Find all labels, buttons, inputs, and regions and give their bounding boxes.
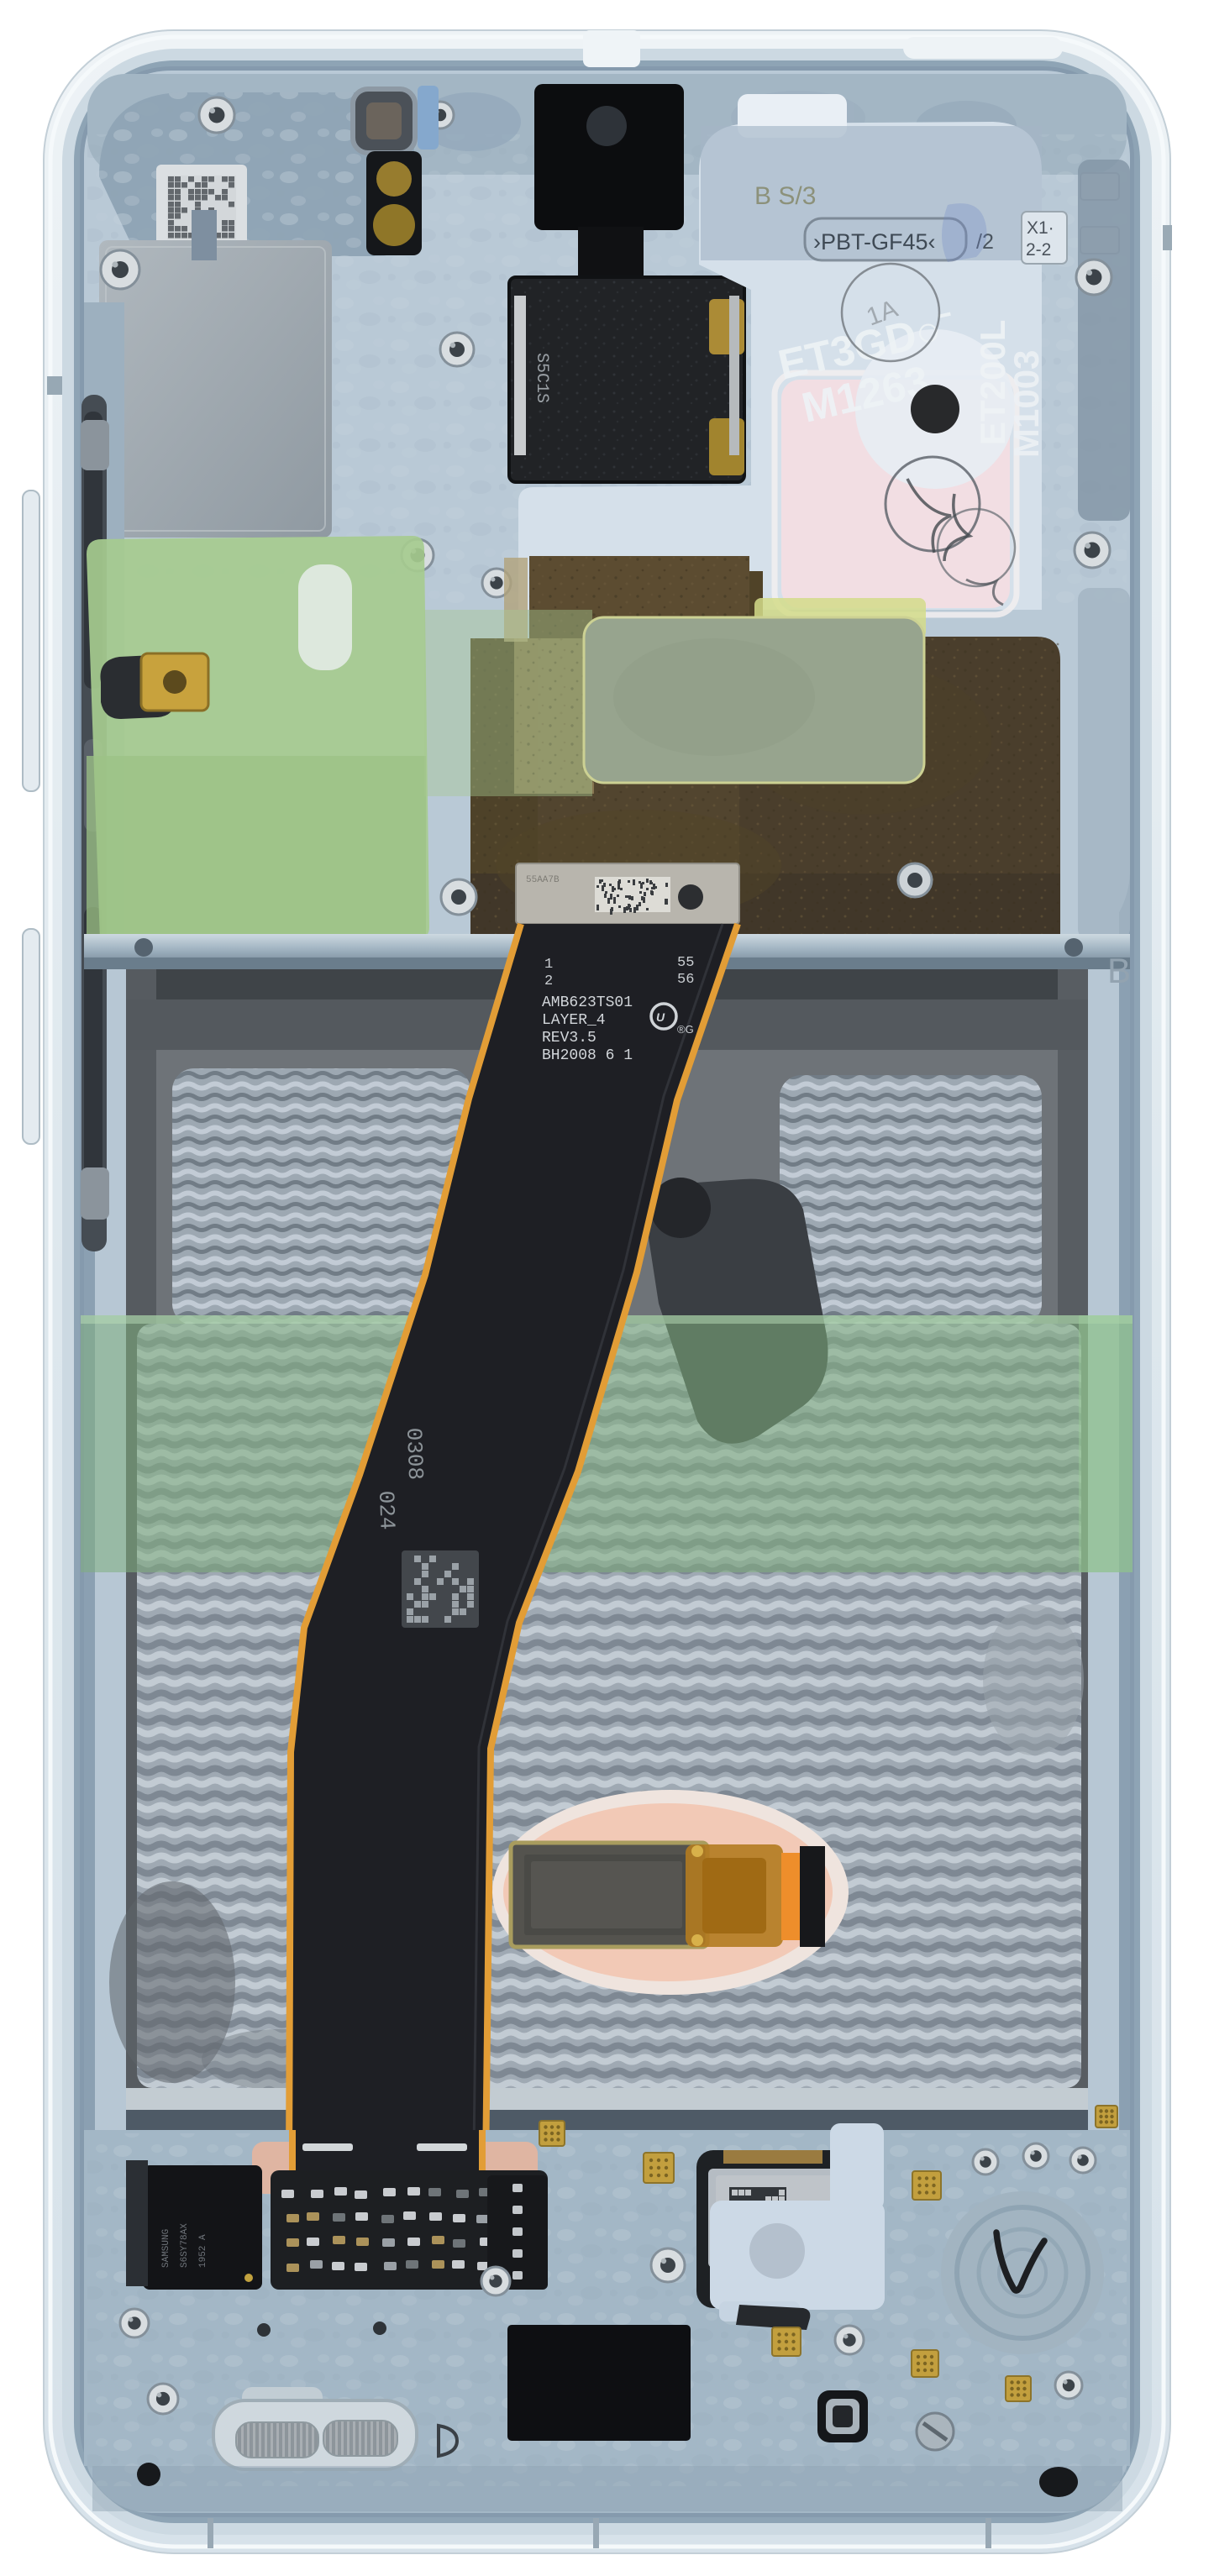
svg-text:B S/3: B S/3 <box>754 182 816 210</box>
svg-text:2-2: 2-2 <box>1026 240 1051 260</box>
svg-text:REV3.5: REV3.5 <box>542 1030 596 1047</box>
svg-text:BH2008 6 1: BH2008 6 1 <box>542 1047 633 1064</box>
svg-text:024: 024 <box>373 1490 400 1530</box>
svg-text:U: U <box>656 1010 665 1024</box>
svg-text:S5C1S: S5C1S <box>532 353 551 403</box>
svg-text:1952 A: 1952 A <box>198 2234 208 2268</box>
svg-text:AMB623TS01: AMB623TS01 <box>542 994 633 1011</box>
svg-text:56: 56 <box>677 972 694 988</box>
svg-text:B: B <box>1107 951 1131 990</box>
svg-text:0308: 0308 <box>401 1427 428 1480</box>
svg-text:®G: ®G <box>677 1023 694 1036</box>
svg-text:1: 1 <box>544 957 553 973</box>
svg-text:2: 2 <box>544 973 553 989</box>
svg-text:55: 55 <box>677 955 694 971</box>
svg-text:S6SY78AX: S6SY78AX <box>180 2223 190 2268</box>
svg-text:›PBT-GF45‹: ›PBT-GF45‹ <box>813 229 936 254</box>
svg-text:LAYER_4: LAYER_4 <box>542 1012 606 1029</box>
svg-text:55AA7B: 55AA7B <box>526 875 560 885</box>
svg-text:X1·: X1· <box>1027 218 1054 238</box>
svg-text:M1003: M1003 <box>1006 350 1046 458</box>
svg-text:SAMSUNG: SAMSUNG <box>161 2229 171 2268</box>
